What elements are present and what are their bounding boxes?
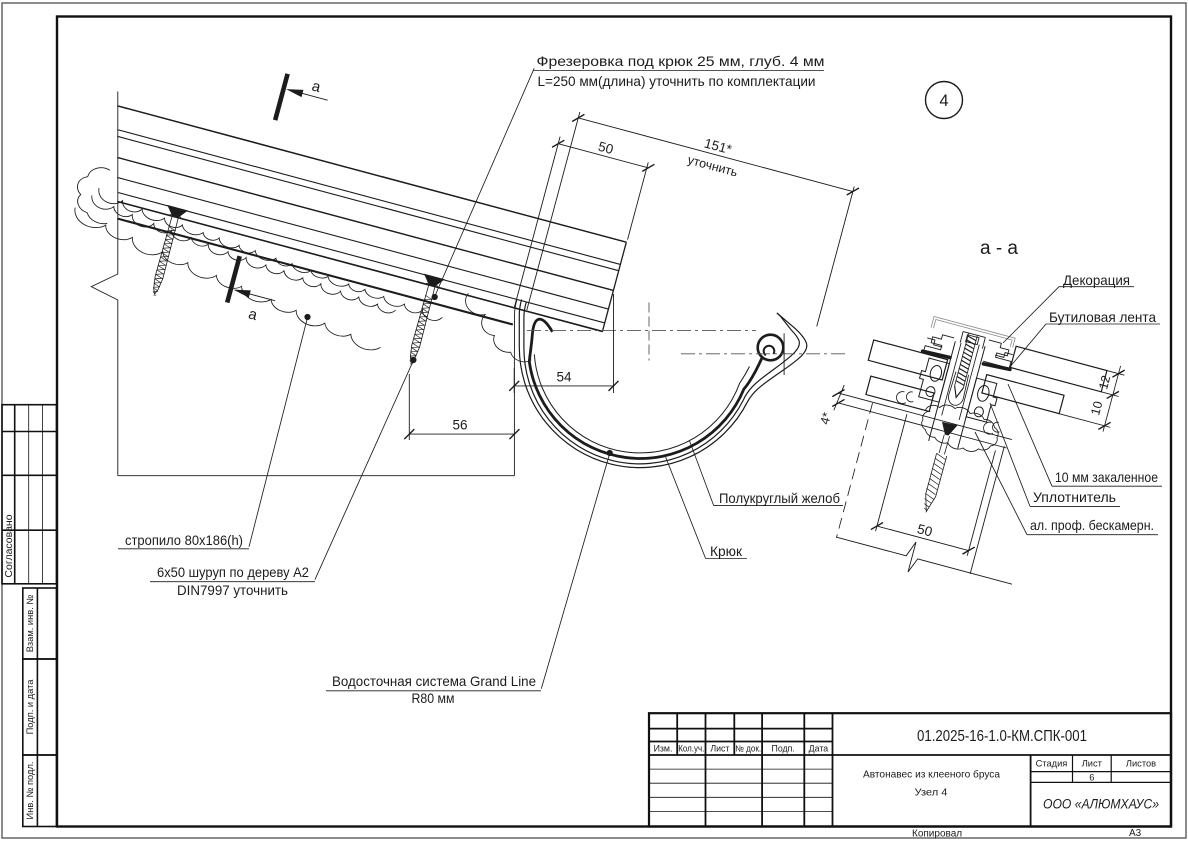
svg-text:Подп.: Подп. bbox=[772, 744, 795, 754]
svg-text:Уплотнитель: Уплотнитель bbox=[1033, 489, 1116, 505]
svg-text:10 мм закаленное: 10 мм закаленное bbox=[1055, 469, 1158, 485]
svg-text:Узел 4: Узел 4 bbox=[915, 787, 948, 799]
svg-text:Подп. и дата: Подп. и дата bbox=[25, 679, 35, 735]
svg-text:Декорация: Декорация bbox=[1063, 272, 1130, 288]
svg-text:a - a: a - a bbox=[980, 238, 1018, 259]
svg-text:4: 4 bbox=[939, 92, 948, 110]
svg-text:01.2025-16-1.0-КМ.СПК-001: 01.2025-16-1.0-КМ.СПК-001 bbox=[917, 728, 1087, 745]
svg-text:Листов: Листов bbox=[1126, 759, 1156, 769]
svg-text:Бутиловая лента: Бутиловая лента bbox=[1049, 309, 1156, 325]
svg-text:ООО «АЛЮМХАУС»: ООО «АЛЮМХАУС» bbox=[1043, 797, 1159, 812]
svg-text:Изм.: Изм. bbox=[654, 744, 673, 754]
svg-text:Полукруглый желоб: Полукруглый желоб bbox=[719, 490, 840, 506]
svg-text:54: 54 bbox=[556, 370, 572, 385]
svg-text:ал. проф. бескамерн.: ал. проф. бескамерн. bbox=[1030, 517, 1154, 533]
svg-text:Дата: Дата bbox=[809, 744, 829, 754]
svg-text:Лист: Лист bbox=[1082, 759, 1103, 769]
svg-text:Крюк: Крюк bbox=[710, 543, 743, 559]
svg-text:А3: А3 bbox=[1129, 828, 1142, 839]
svg-text:Фрезеровка под крюк 25 мм, глу: Фрезеровка под крюк 25 мм, глуб. 4 мм bbox=[537, 53, 825, 69]
svg-text:Стадия: Стадия bbox=[1036, 759, 1068, 769]
svg-text:стропило 80x186(h): стропило 80x186(h) bbox=[125, 532, 243, 548]
svg-text:6х50 шуруп по дереву А2: 6х50 шуруп по дереву А2 bbox=[157, 564, 309, 580]
svg-text:L=250 мм(длина) уточнить по ко: L=250 мм(длина) уточнить по комплектации bbox=[538, 73, 816, 89]
svg-text:Взам. инв. №: Взам. инв. № bbox=[25, 595, 35, 653]
svg-text:56: 56 bbox=[452, 418, 467, 433]
svg-text:R80 мм: R80 мм bbox=[412, 690, 455, 706]
svg-text:DIN7997 уточнить: DIN7997 уточнить bbox=[177, 582, 288, 598]
svg-text:Лист: Лист bbox=[710, 744, 729, 754]
svg-text:Автонавес из клееного бруса: Автонавес из клееного бруса bbox=[863, 769, 1000, 781]
svg-text:Водосточная система Grand Line: Водосточная система Grand Line bbox=[332, 673, 536, 689]
svg-text:6: 6 bbox=[1089, 773, 1094, 783]
svg-text:Согласовано: Согласовано bbox=[3, 514, 15, 577]
svg-text:Копировал: Копировал bbox=[912, 829, 962, 840]
svg-text:Кол.уч.: Кол.уч. bbox=[678, 744, 704, 754]
svg-text:Инв. № подл.: Инв. № подл. bbox=[25, 762, 35, 820]
svg-text:№ док.: № док. bbox=[735, 744, 761, 754]
